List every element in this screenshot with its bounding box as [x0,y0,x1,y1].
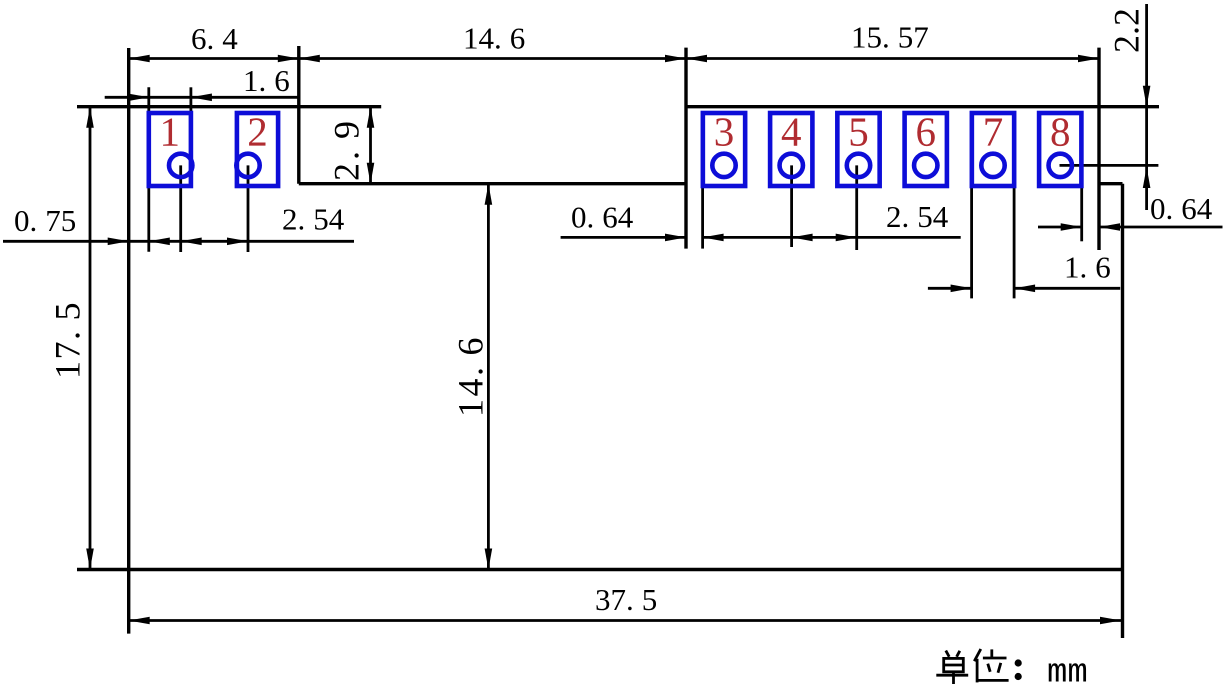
svg-text:6: 6 [916,109,937,155]
svg-text:0.64: 0.64 [571,200,634,235]
svg-text:17.5: 17.5 [48,301,88,379]
svg-text:2.9: 2.9 [327,118,367,181]
svg-text:3: 3 [714,109,735,155]
svg-text:0.75: 0.75 [14,203,76,238]
svg-text:2.54: 2.54 [886,199,949,234]
svg-text:1: 1 [160,109,181,155]
svg-text:mm: mm [1047,655,1088,692]
svg-text:0.64: 0.64 [1150,191,1213,226]
svg-text:14.6: 14.6 [463,21,525,56]
svg-text:2: 2 [247,109,268,155]
svg-text:2.54: 2.54 [282,202,345,237]
svg-text:8: 8 [1050,109,1071,155]
svg-text:14.6: 14.6 [451,335,491,417]
svg-text:5: 5 [848,109,869,155]
svg-text:37.5: 37.5 [595,582,657,617]
svg-text:2.2: 2.2 [1107,8,1147,53]
svg-text:7: 7 [983,109,1004,155]
svg-text:4: 4 [781,109,802,155]
